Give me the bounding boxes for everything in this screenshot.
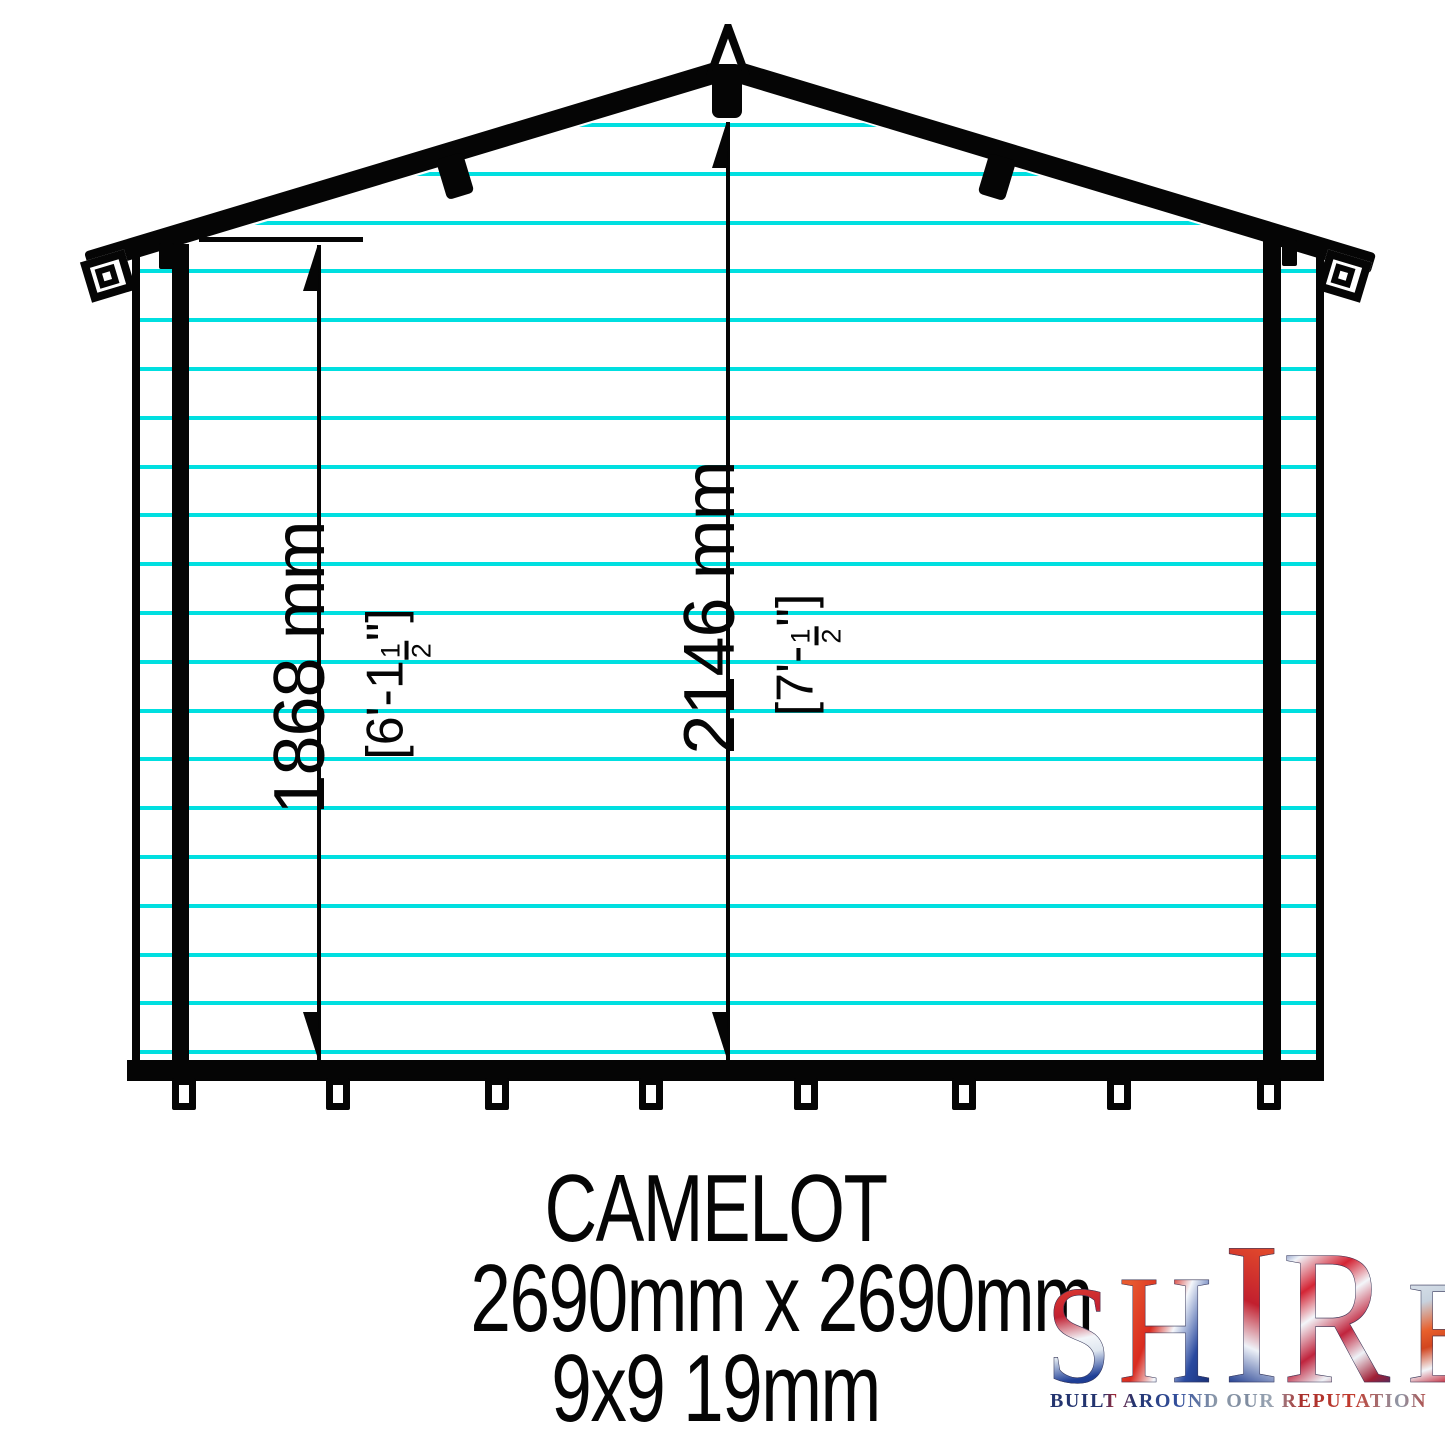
cladding-line bbox=[110, 855, 1350, 859]
cladding-line bbox=[110, 269, 1350, 273]
fascia-hole-left bbox=[95, 264, 120, 289]
cladding-line bbox=[110, 1050, 1350, 1054]
ridge-imperial-suffix: "] bbox=[767, 594, 825, 627]
foundation-foot bbox=[485, 1078, 509, 1110]
eaves-imperial-prefix: [6'-1 bbox=[357, 660, 415, 760]
wall-outline-right bbox=[1316, 252, 1324, 1062]
eaves-height-imperial-label: [6'-112"] bbox=[356, 608, 437, 759]
ridge-height-metric-label: 2146 mm bbox=[669, 461, 751, 754]
ridge-imperial-prefix: [7'- bbox=[767, 646, 825, 717]
eaves-imperial-suffix: "] bbox=[357, 608, 415, 641]
wall-plate-left bbox=[159, 243, 174, 269]
cladding-line bbox=[110, 318, 1350, 322]
cladding-line bbox=[110, 172, 1350, 176]
logo-letter: R bbox=[1282, 1221, 1390, 1414]
cladding-line bbox=[110, 1001, 1350, 1005]
foundation-foot bbox=[1257, 1078, 1281, 1110]
logo-letter: H bbox=[1118, 1252, 1213, 1408]
cladding-line bbox=[110, 367, 1350, 371]
shire-logo-wordmark: SHIRE bbox=[1046, 1212, 1441, 1416]
foundation-foot bbox=[1107, 1078, 1131, 1110]
foundation-foot bbox=[639, 1078, 663, 1110]
product-title: CAMELOT bbox=[470, 1164, 960, 1254]
cladding-line bbox=[110, 416, 1350, 420]
footprint-dimensions: 2690mm x 2690mm bbox=[470, 1254, 960, 1344]
ridge-height-imperial-label: [7'-12"] bbox=[766, 594, 847, 717]
caption-block: CAMELOT 2690mm x 2690mm 9x9 19mm bbox=[393, 1164, 1038, 1434]
logo-letter: I bbox=[1223, 1212, 1280, 1416]
cladding-line bbox=[110, 953, 1350, 957]
logo-letter: S bbox=[1046, 1266, 1111, 1406]
corner-post-left bbox=[172, 244, 189, 1062]
logo-letter: E bbox=[1407, 1259, 1445, 1407]
wall-outline-left bbox=[132, 252, 140, 1062]
eaves-imperial-fraction: 12 bbox=[377, 641, 436, 660]
eaves-dimension-tick bbox=[199, 237, 363, 242]
cladding-line bbox=[110, 123, 1350, 127]
cladding-line bbox=[110, 221, 1350, 225]
ridge-beam bbox=[712, 64, 742, 118]
logo-tagline: BUILT AROUND OUR REPUTATION bbox=[1050, 1390, 1430, 1413]
foundation-foot bbox=[952, 1078, 976, 1110]
size-spec: 9x9 19mm bbox=[470, 1344, 960, 1434]
shire-logo: SHIRE BUILT AROUND OUR REPUTATION bbox=[1046, 1212, 1441, 1416]
shed-elevation-drawing: 1868 mm [6'-112"] 2146 mm [7'-12"] CAMEL… bbox=[0, 0, 1445, 1445]
foundation-foot bbox=[794, 1078, 818, 1110]
corner-post-right bbox=[1263, 240, 1281, 1062]
cladding-line bbox=[110, 904, 1350, 908]
eaves-height-metric-label: 1868 mm bbox=[259, 521, 341, 814]
foundation-foot bbox=[172, 1078, 196, 1110]
foundation-foot bbox=[326, 1078, 350, 1110]
ridge-imperial-fraction: 12 bbox=[787, 627, 846, 646]
wall-plate-right bbox=[1282, 240, 1297, 266]
floor-bearer bbox=[127, 1060, 1324, 1081]
fascia-hole-right bbox=[1331, 263, 1356, 288]
